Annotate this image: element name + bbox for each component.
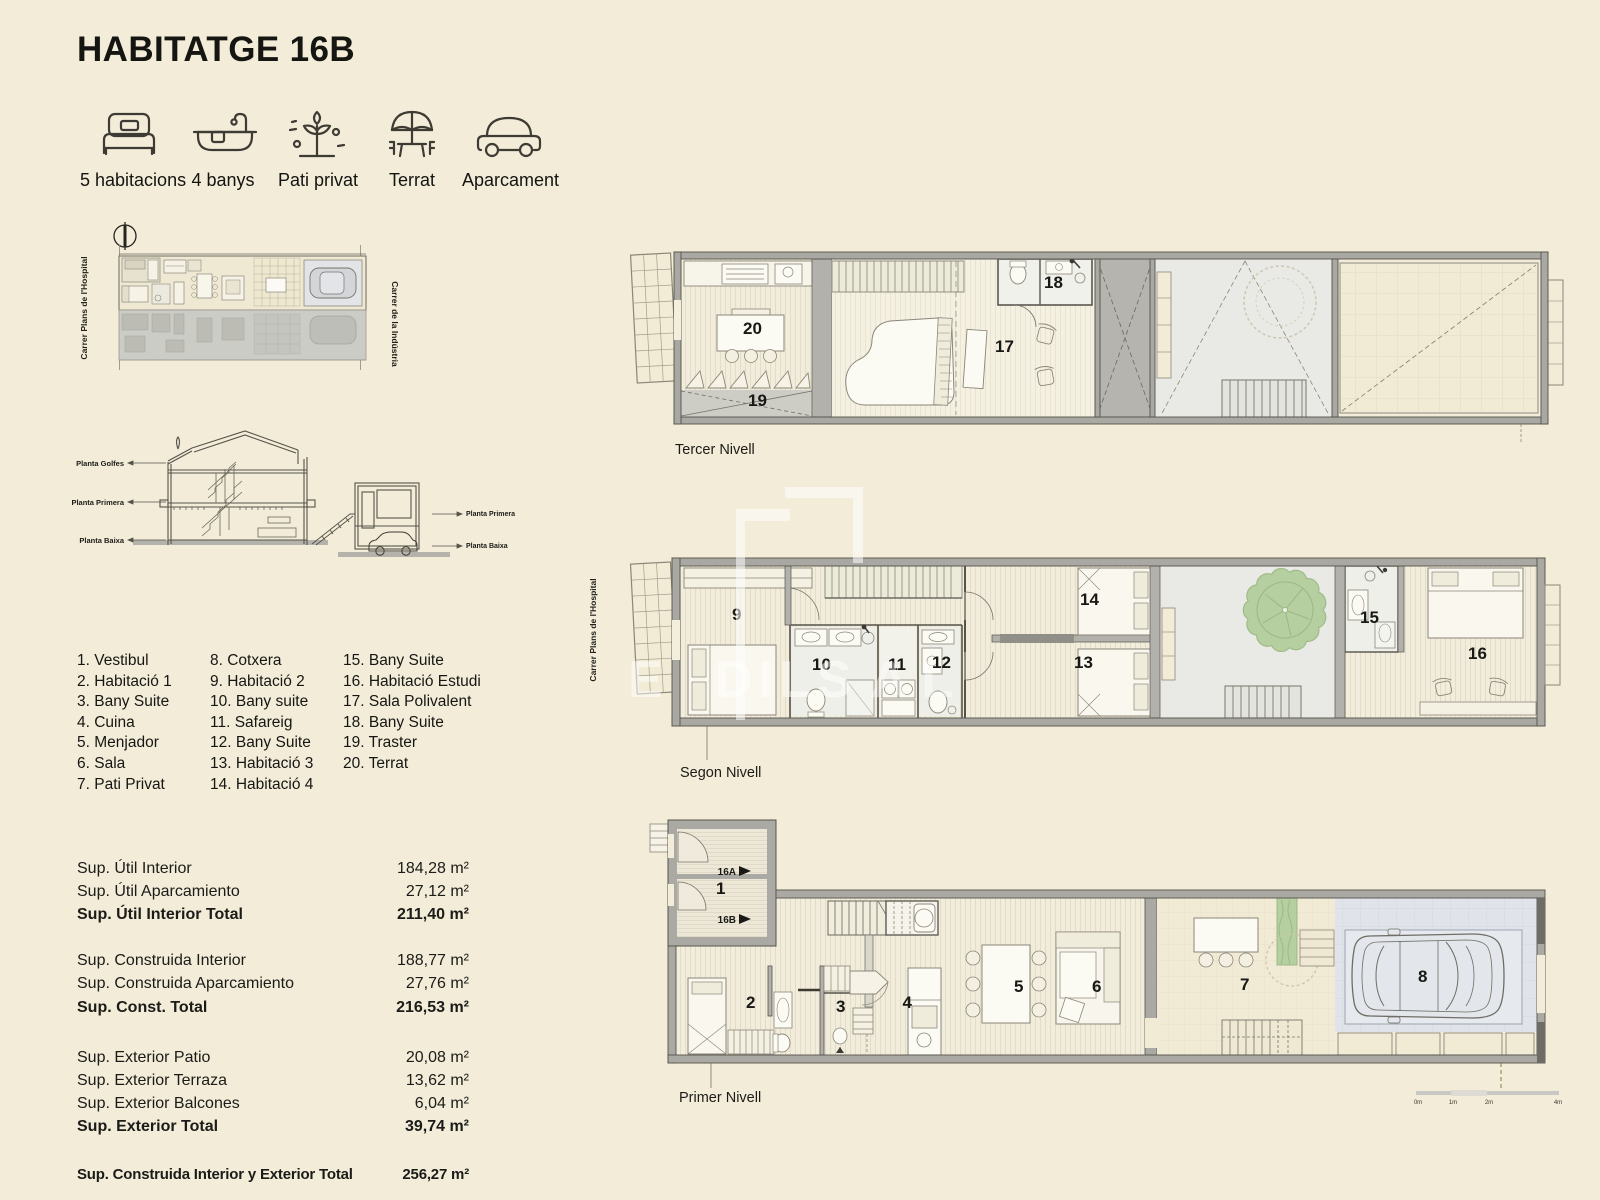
svg-text:15: 15 bbox=[1360, 608, 1379, 627]
svg-text:16A: 16A bbox=[718, 867, 736, 878]
svg-text:AL: AL bbox=[870, 651, 967, 709]
svg-text:2: 2 bbox=[746, 993, 755, 1012]
svg-text:20: 20 bbox=[743, 319, 762, 338]
svg-text:6: 6 bbox=[1092, 977, 1101, 996]
svg-text:Planta Baixa: Planta Baixa bbox=[79, 536, 124, 545]
svg-text:4: 4 bbox=[903, 993, 913, 1012]
svg-text:Planta Primera: Planta Primera bbox=[71, 498, 124, 507]
svg-text:1: 1 bbox=[716, 879, 725, 898]
svg-text:8: 8 bbox=[1418, 967, 1427, 986]
svg-text:17: 17 bbox=[995, 337, 1014, 356]
svg-text:Segon Nivell: Segon Nivell bbox=[680, 765, 761, 781]
svg-text:4m: 4m bbox=[1554, 1100, 1562, 1106]
svg-text:Primer Nivell: Primer Nivell bbox=[679, 1090, 761, 1106]
svg-text:DILS: DILS bbox=[715, 651, 857, 709]
svg-text:16B: 16B bbox=[718, 915, 736, 926]
svg-text:Planta Golfes: Planta Golfes bbox=[76, 459, 124, 468]
svg-text:Planta Baixa: Planta Baixa bbox=[466, 543, 508, 550]
svg-text:18: 18 bbox=[1044, 273, 1063, 292]
svg-text:5: 5 bbox=[1014, 977, 1023, 996]
svg-text:Carrer de la Indústria: Carrer de la Indústria bbox=[390, 281, 400, 367]
svg-text:16: 16 bbox=[1468, 644, 1487, 663]
svg-text:2m: 2m bbox=[1485, 1100, 1493, 1106]
svg-text:14: 14 bbox=[1080, 590, 1099, 609]
svg-text:19: 19 bbox=[748, 391, 767, 410]
svg-text:13: 13 bbox=[1074, 653, 1093, 672]
svg-text:0m: 0m bbox=[1414, 1100, 1422, 1106]
svg-text:1m: 1m bbox=[1449, 1100, 1457, 1106]
svg-text:Planta Primera: Planta Primera bbox=[466, 511, 515, 518]
svg-text:Carrer Plans de l'Hospital: Carrer Plans de l'Hospital bbox=[79, 256, 89, 359]
svg-text:7: 7 bbox=[1240, 975, 1249, 994]
svg-text:3: 3 bbox=[836, 997, 845, 1016]
svg-text:E: E bbox=[628, 651, 663, 709]
svg-text:Tercer Nivell: Tercer Nivell bbox=[675, 442, 755, 458]
svg-text:Carrer Plans de l'Hospital: Carrer Plans de l'Hospital bbox=[588, 578, 598, 681]
